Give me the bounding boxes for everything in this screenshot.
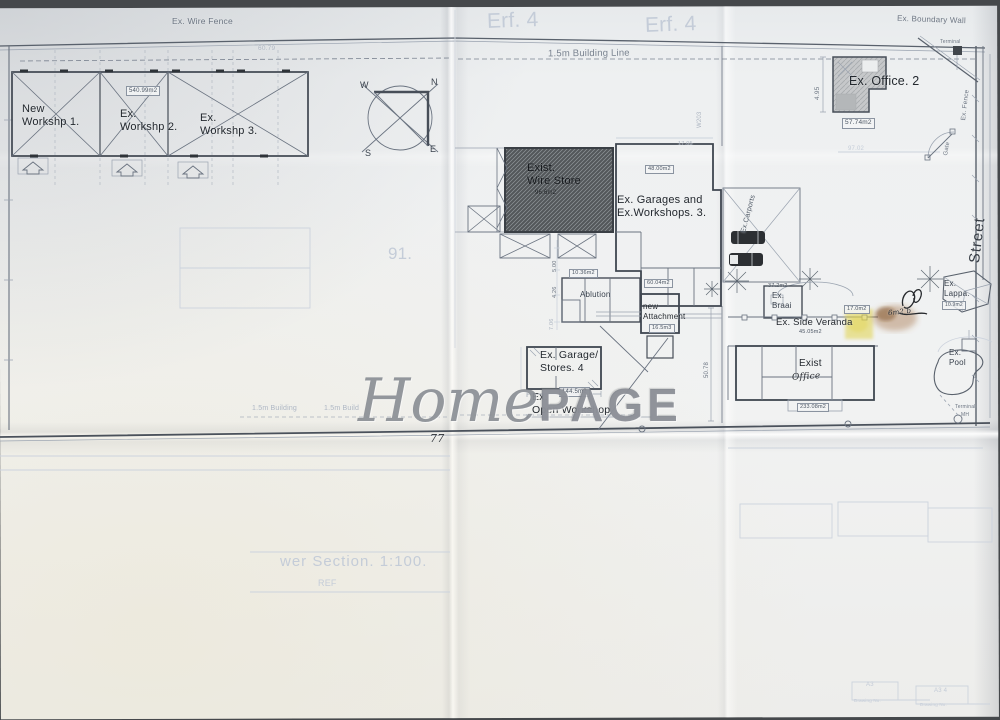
dimension-label: 50.78 [704,362,711,378]
room-label-braai: Ex. Braai [772,291,792,311]
room-label-garages: Ex. Garages and Ex.Workshops. 3. [617,194,706,221]
titleblock-text: Drawing No. [854,698,881,703]
dimension-label: 17.05 [678,141,693,148]
area-tag: 48.00m2 [645,165,674,174]
room-label-workshop2: Ex. Workshp 2. [120,108,177,135]
terminal-label: Terminal [940,39,961,45]
dimension-label: 4.95 [814,87,822,100]
titleblock-text: A3 [866,682,874,689]
titleblock-text: A3 4 [934,688,947,695]
watermark-script-text: Home [358,366,539,436]
terminal-label: Terminal [955,404,976,410]
watermark-caps-text: PAGE [539,379,682,431]
room-label-workshop3: Ex. Workshp 3. [200,112,257,139]
section-title-faint: wer Section. 1:100. [280,553,427,571]
building-line-label: 1.5m Building [252,405,297,414]
compass-s-label: S [365,148,371,159]
building-line-label: 1.5m Build [324,405,359,414]
room-label-office2: Ex. Office. 2 [849,74,919,89]
room-label-attachment: new Attachment [643,302,685,322]
erf-label: Erf. 4 [487,7,539,34]
volume-tag: 16.5m3 [649,324,675,333]
homepage-watermark: HomePAGE [358,366,682,436]
area-tag: 45.05m2 [799,329,822,336]
area-tag: 37.2m2 [768,283,788,290]
manhole-label: MH [961,412,969,418]
area-tag: 10.36m2 [569,269,598,278]
show-through-text: REF [318,578,337,589]
office2-building [820,36,980,160]
room-label-new-workshop1: New Workshp 1. [22,103,79,130]
building-line-label: 1.5m Building Line [548,48,630,60]
room-label-lappa: Ex. Lappa. [944,279,970,299]
compass-rose-icon [362,84,438,152]
window-tag: W203 [697,112,704,128]
scanned-plan-photo: Ex. Wire Fence Erf. 4 Erf. 4 Ex. Boundar… [0,0,1000,720]
area-tag: 60.04m2 [644,279,673,288]
area-tag: 96.6m2 [535,190,556,197]
room-label-ablution: Ablution [580,290,611,300]
dimension-label: 7.06 [549,318,556,330]
room-label-veranda: Ex. Side Veranda [776,317,853,329]
carports [704,188,943,297]
titleblock-text: Drawing No. [920,702,947,707]
room-label-wire-store: Exist. Wire Store [527,162,581,189]
tree-icon [704,281,720,297]
tree-icon [725,269,749,293]
room-label-pool: Ex. Pool [949,348,966,368]
handwritten-office-label: Office [792,371,821,383]
show-through-text: 91. [388,244,412,265]
compass-w-label: W [360,80,369,91]
erf-label: Erf. 4 [645,11,697,38]
dimension-label: 60.79 [258,45,275,53]
compass-n-label: N [431,77,438,88]
ex-wire-fence-label: Ex. Wire Fence [172,16,233,26]
dimension-label: 4.26 [552,286,559,298]
area-tag: 57.74m2 [842,118,875,129]
dimension-label: 97.02 [848,146,864,153]
dimension-label: 5.00 [552,260,559,272]
area-tag: 233.08m2 [797,403,829,412]
compass-e-label: E [430,144,436,155]
area-tag: 10.9m2 [942,301,966,310]
tree-icon [917,266,943,292]
area-tag: 17.0m2 [844,305,870,314]
room-label-exist: Exist [799,358,822,370]
area-tag: 540.99m2 [126,86,160,96]
